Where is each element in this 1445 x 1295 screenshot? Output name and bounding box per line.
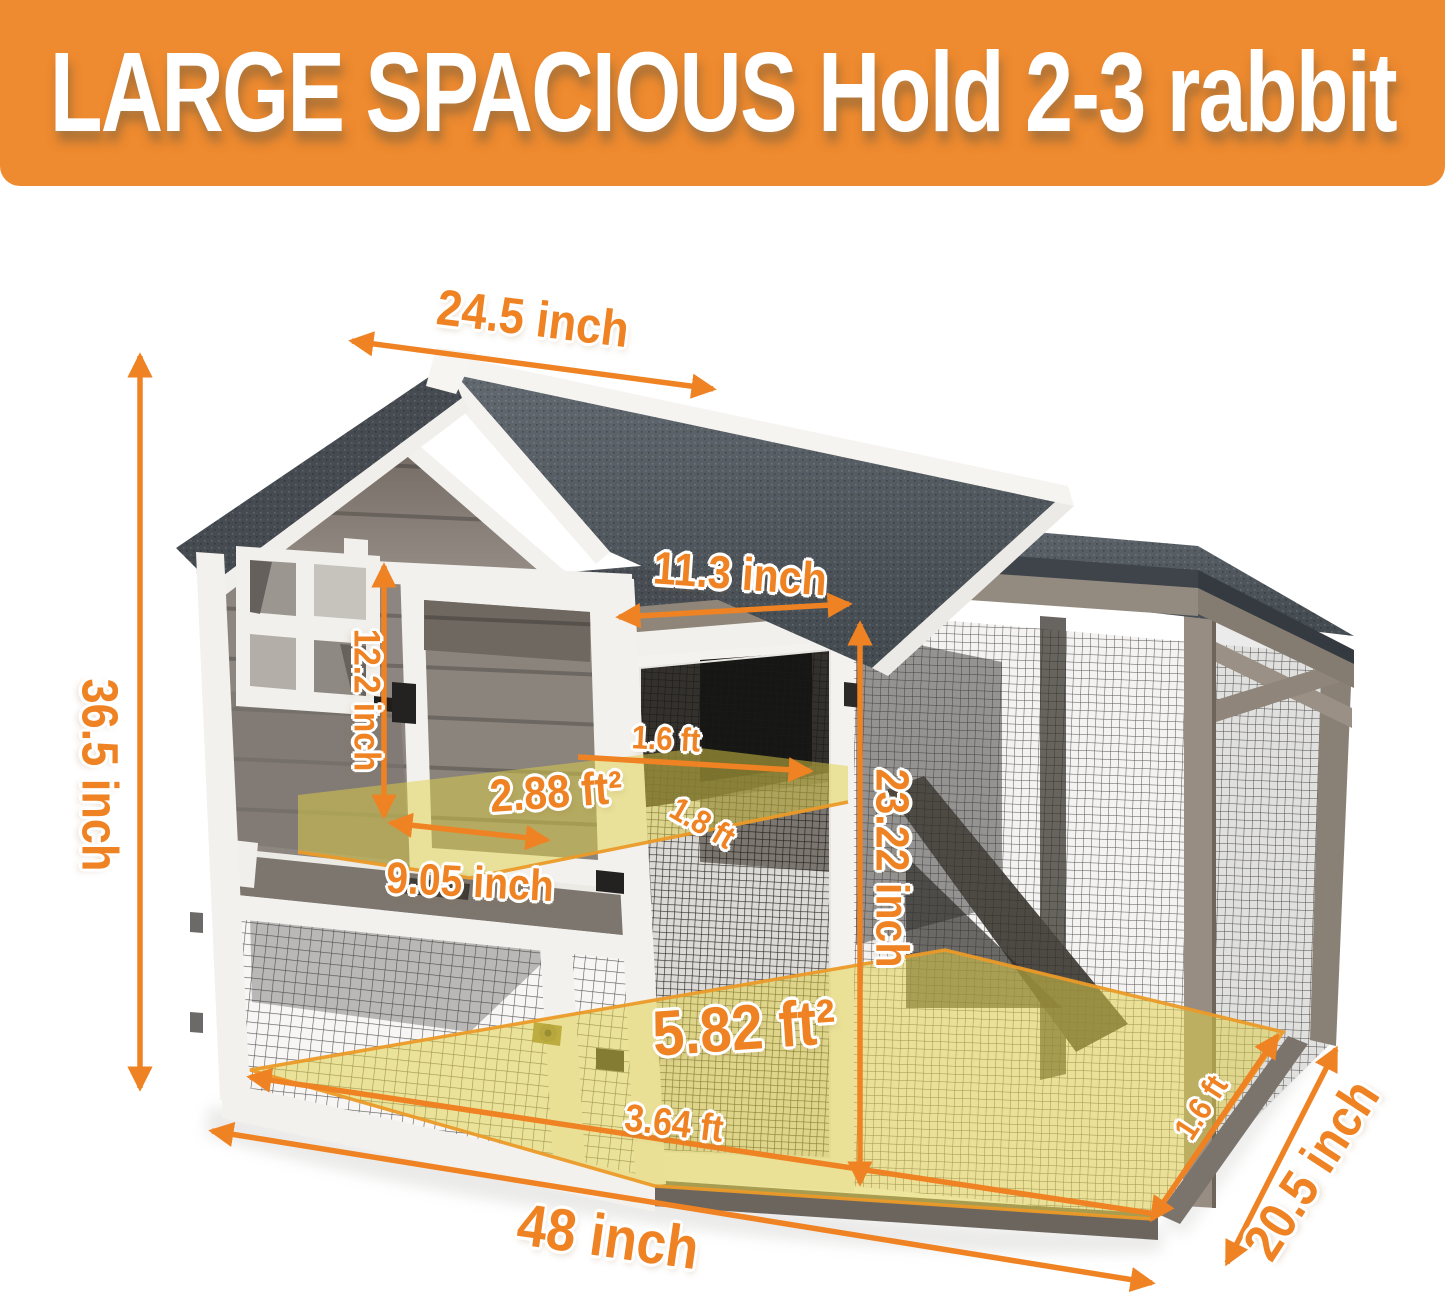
house-door-latch [392,682,416,724]
dim-label-run-height: 23.22 inch [866,768,919,967]
product-dimension-image: LARGE SPACIOUS Hold 2-3 rabbit [0,0,1445,1295]
dim-label-shelf-depth: 1.6 ft [631,720,701,761]
dim-label-shelf-area: 2.88 ft² [488,761,624,823]
dim-label-shelf-width: 9.05 inch [385,854,555,912]
dim-label-floor-area: 5.82 ft² [650,985,838,1071]
dim-label-total-height: 36.5 inch [70,679,129,872]
dim-label-house-door-height: 12.2 inch [345,629,388,772]
